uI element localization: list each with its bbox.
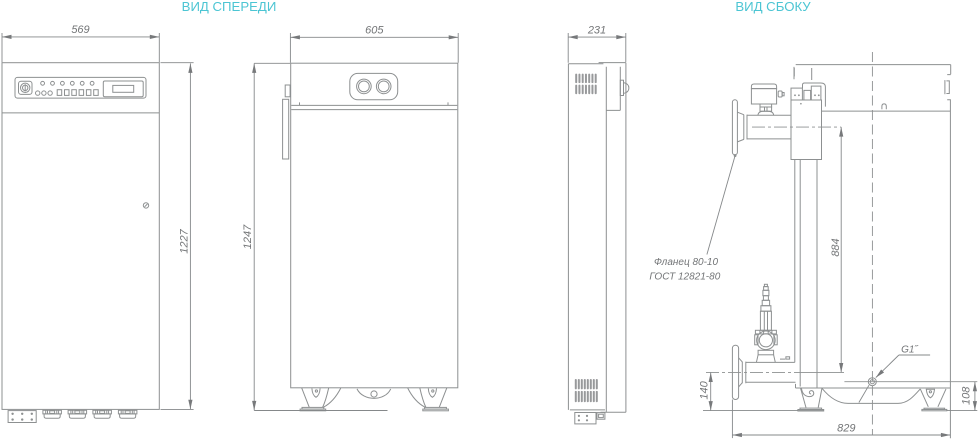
svg-text:ГОСТ 12821-80: ГОСТ 12821-80 xyxy=(649,272,720,283)
svg-text:140: 140 xyxy=(699,380,711,399)
svg-text:108: 108 xyxy=(961,386,973,405)
svg-text:ВИД СБОКУ: ВИД СБОКУ xyxy=(735,0,811,14)
svg-text:569: 569 xyxy=(71,24,89,36)
svg-text:Фланец 80-10: Фланец 80-10 xyxy=(654,257,719,268)
svg-text:1247: 1247 xyxy=(242,224,254,249)
svg-text:ВИД СПЕРЕДИ: ВИД СПЕРЕДИ xyxy=(182,0,277,14)
svg-text:884: 884 xyxy=(830,238,842,256)
svg-text:G1˝: G1˝ xyxy=(901,343,919,355)
svg-text:605: 605 xyxy=(365,25,384,37)
svg-text:231: 231 xyxy=(587,24,606,36)
svg-text:829: 829 xyxy=(837,422,855,434)
svg-text:1227: 1227 xyxy=(178,228,190,253)
